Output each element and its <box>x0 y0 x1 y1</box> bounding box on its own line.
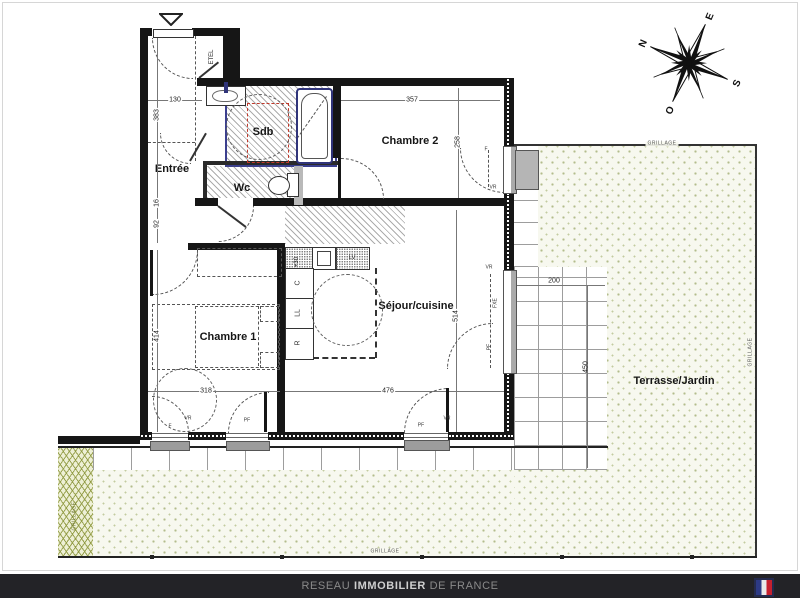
dim-entree-h3: 92 <box>154 219 161 229</box>
terrace-walkway <box>93 448 514 470</box>
fence-bottom <box>58 556 757 558</box>
room-label-chambre2: Chambre 2 <box>382 135 439 147</box>
dim-sejour-height: 514 <box>453 309 460 323</box>
chambre2-shutter-box <box>515 150 539 190</box>
window-label: VR <box>486 266 493 271</box>
dim-chambre2-height: 258 <box>455 135 462 149</box>
wall-east-2 <box>504 192 514 270</box>
sejour-french-window <box>503 270 517 374</box>
appliance-label-lv: LV <box>349 255 356 261</box>
kitchen-zone-line <box>313 357 375 359</box>
wall-wc-south-1 <box>195 198 218 206</box>
window-pane <box>511 271 516 373</box>
room-label-entree: Entrée <box>155 163 189 175</box>
window-label: PF <box>244 419 250 424</box>
wall-etel-pillar <box>223 28 240 80</box>
room-label-sdb: Sdb <box>253 126 274 138</box>
dim-entree-width: 130 <box>168 97 182 104</box>
fence-tick <box>690 555 694 559</box>
wardrobe <box>197 248 282 277</box>
fence-right <box>755 144 757 558</box>
wall-north <box>197 78 514 86</box>
window-frame-line <box>152 437 188 438</box>
appliance-label-c: C <box>295 280 302 285</box>
wall-south-4 <box>448 432 514 440</box>
fence-tick <box>560 555 564 559</box>
chambre2-window-clearance <box>488 150 489 187</box>
window-label: FXE <box>494 298 499 308</box>
compass-e: E <box>704 11 717 22</box>
shutter-box <box>150 441 190 451</box>
wall-east-1 <box>504 78 514 146</box>
window-frame-line <box>152 433 188 434</box>
dim-entree-h2: 16 <box>154 198 161 208</box>
kitchen-sink-basin <box>317 251 331 266</box>
wall-hall-chambre2-south <box>253 198 504 206</box>
wall-south-1 <box>140 432 152 440</box>
appliance-label-r: R <box>295 340 302 345</box>
toilet-bowl <box>268 176 290 195</box>
dim-entree-h1: 383 <box>154 108 161 122</box>
fence-label-bottom: GRILLAGE <box>368 550 401 555</box>
window-label: F <box>484 148 487 153</box>
sejour-turning-circle <box>311 274 383 346</box>
wall-entrance-left <box>140 28 152 36</box>
dim-chambre2-width: 357 <box>405 97 419 104</box>
window-label: PF <box>488 344 493 350</box>
compass-o: O <box>664 105 677 117</box>
bathtub <box>296 88 333 164</box>
footer-bar: RESEAU IMMOBILIER DE FRANCE <box>0 574 800 598</box>
dim-terrasse-width: 200 <box>547 278 561 285</box>
fence-tick <box>280 555 284 559</box>
dim-sejour-width: 476 <box>381 388 395 395</box>
french-flag-icon <box>754 578 774 597</box>
room-label-wc: Wc <box>234 182 251 194</box>
dim-line <box>516 285 605 286</box>
garden-strip-south <box>93 470 514 558</box>
entree-closet-line <box>195 36 196 161</box>
plumbing-mark <box>224 82 228 93</box>
dim-line <box>157 38 158 243</box>
walkway-edge <box>58 446 608 448</box>
window-label: VR <box>490 186 497 191</box>
nightstand <box>260 352 279 368</box>
room-label-sejour: Séjour/cuisine <box>378 300 453 312</box>
window-frame-line <box>226 437 268 438</box>
sejour-south-pf-leaf <box>446 388 449 432</box>
dim-terrasse-height: 450 <box>583 360 590 374</box>
wall-south-2 <box>188 432 226 440</box>
chambre1-pf-leaf <box>264 392 267 432</box>
window-frame-line <box>226 433 268 434</box>
fence-top <box>512 144 757 146</box>
compass-n: N <box>637 38 650 49</box>
window-label: F <box>168 425 171 430</box>
dim-chambre1-height: 414 <box>154 329 161 343</box>
window-label: PF <box>418 424 424 429</box>
bed-headboard-line <box>258 306 259 366</box>
footer-text-part2: IMMOBILIER <box>354 580 426 592</box>
dim-line <box>587 285 588 468</box>
wall-west <box>140 28 148 440</box>
window-label: VR <box>444 417 451 422</box>
fence-label-top: GRILLAGE <box>645 142 678 147</box>
entrance-arrow-icon <box>159 13 183 26</box>
compass-s: S <box>731 78 744 89</box>
window-label: VR <box>185 417 192 422</box>
footer-text: RESEAU IMMOBILIER DE FRANCE <box>0 574 800 598</box>
wall-east-3 <box>504 372 514 440</box>
dim-counter-plus30: +30 <box>294 256 300 268</box>
floor-plan-page: GRILLAGE GRILLAGE GRILLAGE GRILLAGE 200 … <box>0 0 800 600</box>
terrace-tiled <box>514 267 607 470</box>
kitchen-sink <box>312 247 337 270</box>
fence-label-right: GRILLAGE <box>749 335 754 368</box>
footer-text-part1: RESEAU <box>301 580 350 592</box>
window-frame-line <box>404 433 448 434</box>
footer-text-part3: DE FRANCE <box>430 580 499 592</box>
entrance-door-panel <box>153 29 194 38</box>
fence-tick <box>150 555 154 559</box>
appliance-label-ll: LL <box>295 309 302 317</box>
hall-floor <box>285 206 405 244</box>
shutter-box <box>226 441 270 451</box>
nightstand <box>260 306 279 322</box>
shutter-box <box>404 440 450 451</box>
dim-chambre1-width: 318 <box>199 388 213 395</box>
fence-label-hedge: GRILLAGE <box>73 499 78 532</box>
wall-south-3 <box>268 432 404 440</box>
room-label-terrasse: Terrasse/Jardin <box>633 375 714 387</box>
window-frame-line <box>404 437 448 438</box>
wall-west-extension <box>58 436 140 444</box>
wall-chambre2-west <box>333 86 341 158</box>
dim-line <box>341 100 500 101</box>
fence-tick <box>420 555 424 559</box>
